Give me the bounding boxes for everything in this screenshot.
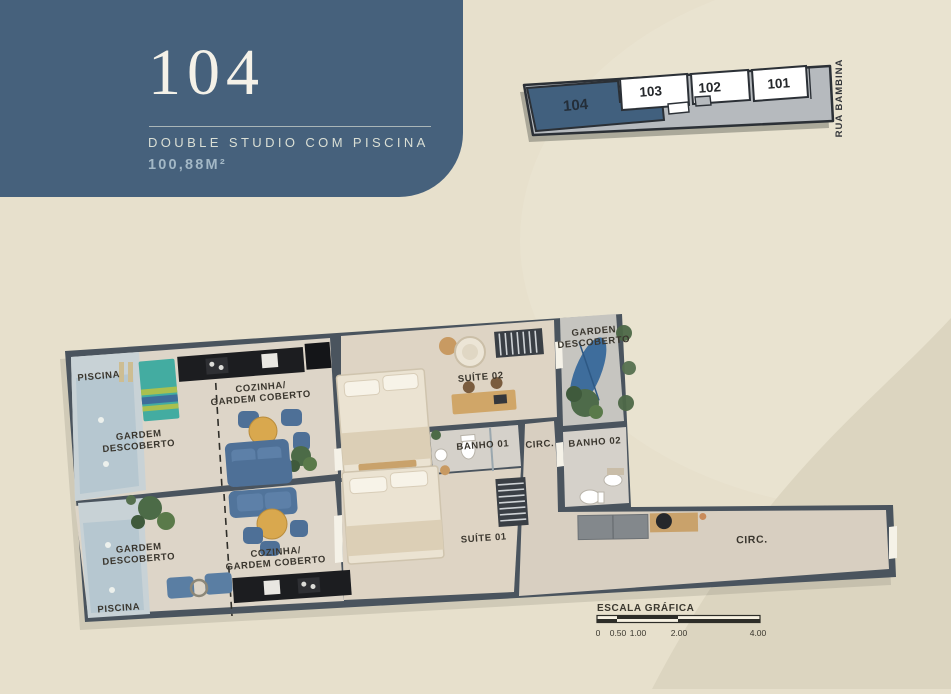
- unit-number: 104: [148, 40, 265, 106]
- key-plan-number-103: 103: [639, 83, 663, 100]
- scale-tick-0: 0: [596, 628, 601, 638]
- bed-suite02: [336, 369, 431, 474]
- label-circ-small: CIRC.: [525, 438, 555, 451]
- scale-tick-200: 2.00: [671, 628, 688, 638]
- scale-tick-050: 0.50: [610, 628, 627, 638]
- bed-suite01: [342, 465, 456, 564]
- scale-tick-400: 4.00: [750, 628, 767, 638]
- unit-area: 100,88M²: [148, 157, 227, 173]
- key-plan-number-102: 102: [698, 79, 722, 96]
- key-plan-number-101: 101: [767, 75, 791, 92]
- key-plan-step-1: [668, 102, 689, 114]
- label-circ-corridor: CIRC.: [736, 534, 768, 547]
- unit-header-panel: 104 DOUBLE STUDIO COM PISCINA 100,88M²: [0, 0, 463, 197]
- key-plan-number-104: 104: [562, 96, 589, 115]
- closet-suite02: [494, 328, 544, 358]
- scale-bar-title: ESCALA GRÁFICA: [597, 601, 694, 614]
- scale-tick-100: 1.00: [630, 628, 647, 638]
- header-divider: [149, 126, 431, 127]
- key-plan-step-2: [695, 96, 711, 106]
- pool-towel: [138, 359, 179, 422]
- unit-subtitle: DOUBLE STUDIO COM PISCINA: [148, 135, 429, 150]
- brochure-page: 104 103 102 101 RUA BAMBINA: [0, 0, 951, 689]
- street-label: RUA BAMBINA: [834, 59, 845, 138]
- closet-suite01: [495, 477, 528, 527]
